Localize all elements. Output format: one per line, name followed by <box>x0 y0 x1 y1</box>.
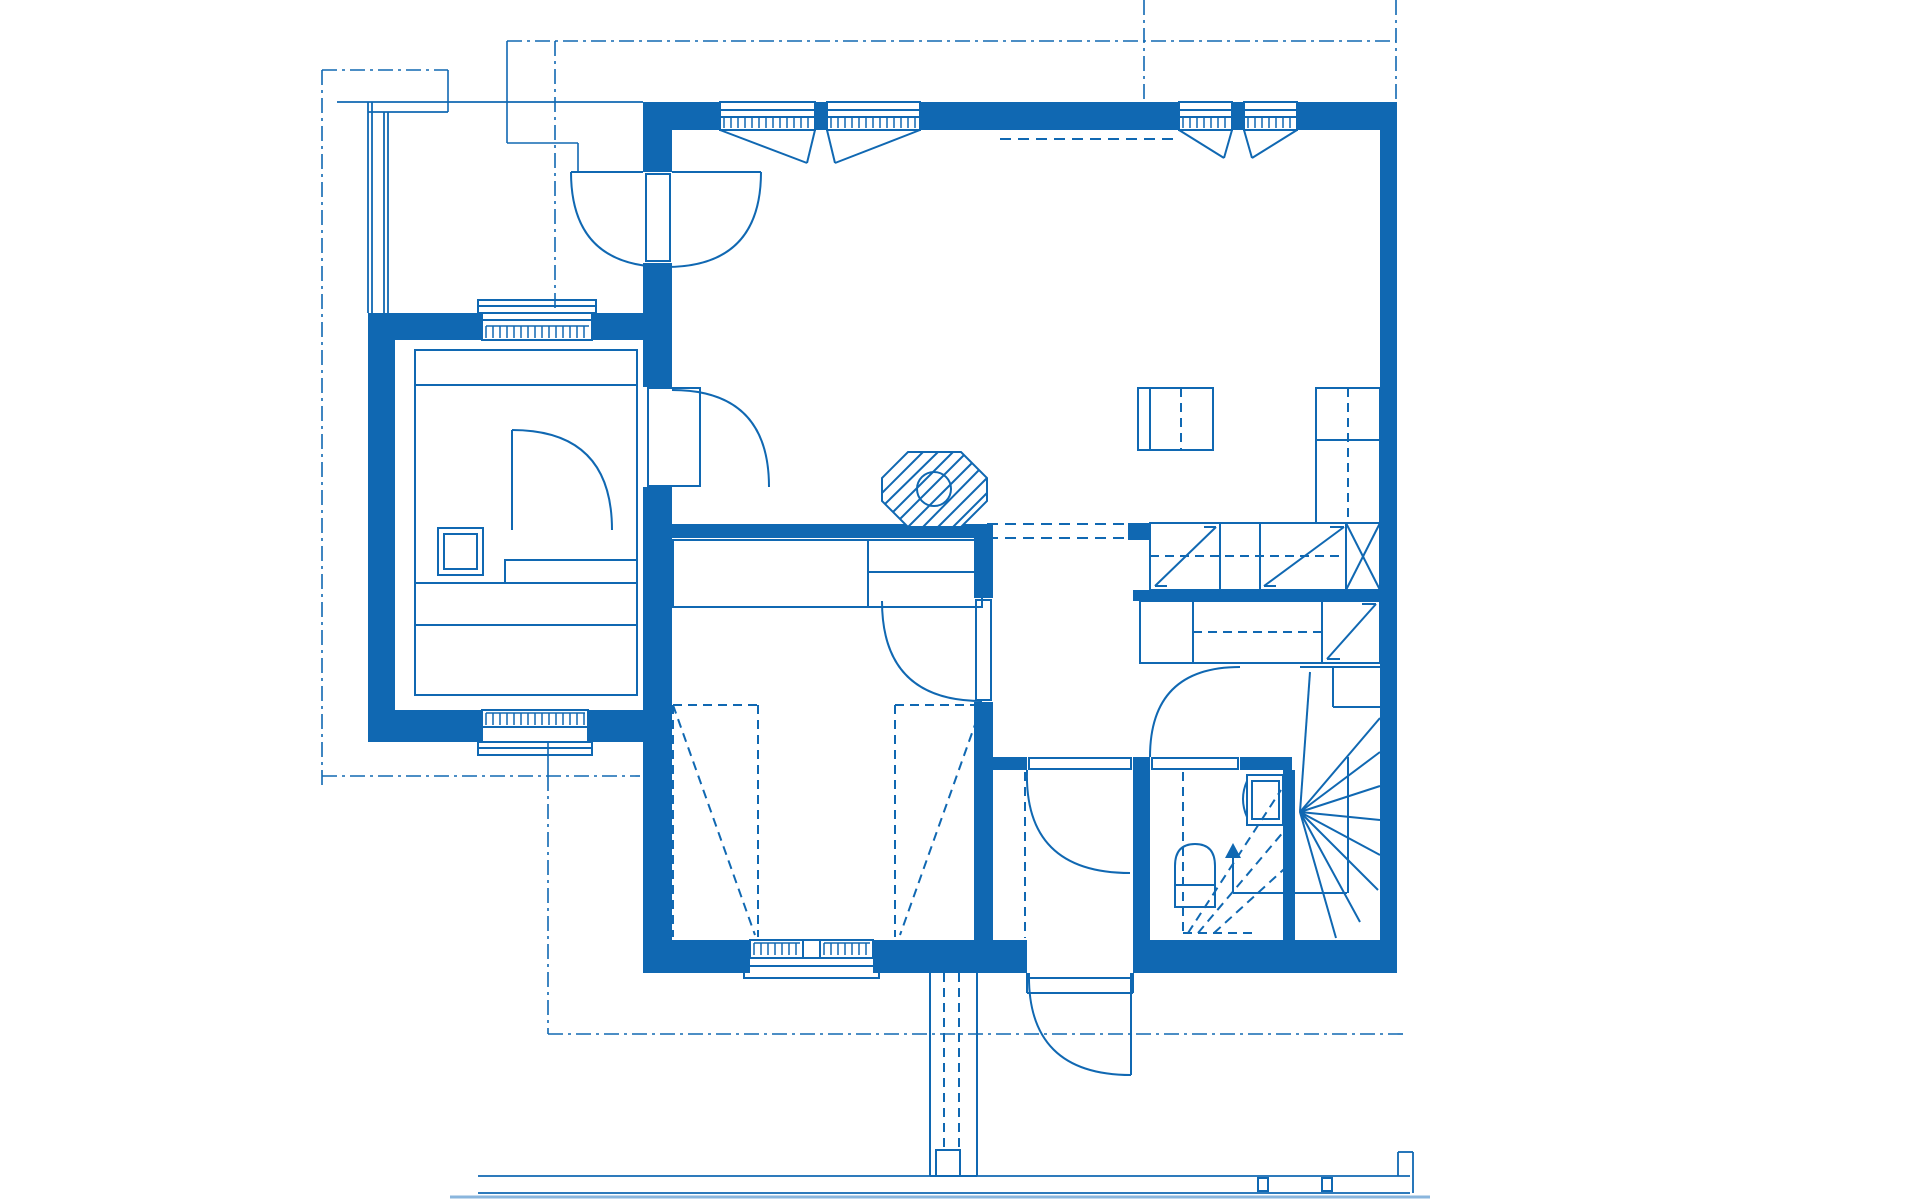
line <box>720 130 807 163</box>
wall-wc-right <box>1283 770 1295 940</box>
sauna-bench-side <box>505 560 637 583</box>
line <box>807 130 815 163</box>
wc-door-swing <box>1150 667 1240 757</box>
wall-vestibule-north <box>993 757 1027 770</box>
line <box>1179 130 1224 158</box>
line <box>1300 752 1380 812</box>
line <box>1155 527 1216 586</box>
line <box>1300 672 1310 812</box>
sauna-door-swing <box>512 430 612 530</box>
exterior-door-gap <box>1027 940 1133 973</box>
bedroom-closet <box>673 540 982 607</box>
wall-hall-stub <box>1128 523 1150 540</box>
bedroom-door-swing <box>882 601 982 701</box>
exterior-door-swing <box>1029 973 1131 1075</box>
sauna-bench-upper <box>415 583 637 625</box>
toilet <box>1175 844 1215 907</box>
line <box>1252 130 1297 158</box>
flue-column-base <box>936 1150 960 1176</box>
wall-closet-row <box>1133 590 1380 601</box>
sauna-room-liner <box>415 350 637 695</box>
floor-plan-page <box>0 0 1920 1200</box>
wall-wing-left <box>368 340 395 710</box>
line <box>1327 604 1376 659</box>
terrace-post-2 <box>1322 1178 1332 1191</box>
line <box>1300 718 1380 812</box>
wing-door-swing <box>672 390 769 487</box>
line <box>835 130 920 163</box>
sauna-bench-lower <box>415 625 637 695</box>
walls-layer <box>368 102 1397 973</box>
floor-plan-drawing <box>0 0 1920 1200</box>
line <box>1244 130 1252 158</box>
line <box>673 705 755 935</box>
plan-details-layer <box>415 102 1380 1176</box>
line <box>1224 130 1232 158</box>
vestibule-door-swing <box>1027 770 1130 873</box>
wall-bedroom-right <box>974 524 993 940</box>
wall-wc-left <box>1133 757 1150 940</box>
terrace-post-1 <box>1258 1178 1268 1191</box>
entry-door-gap <box>643 172 672 263</box>
wall-wc-north <box>1240 757 1292 770</box>
line <box>1214 860 1294 933</box>
outline <box>444 534 477 569</box>
line <box>900 705 982 935</box>
line <box>827 130 835 163</box>
wall-right <box>1380 130 1397 973</box>
